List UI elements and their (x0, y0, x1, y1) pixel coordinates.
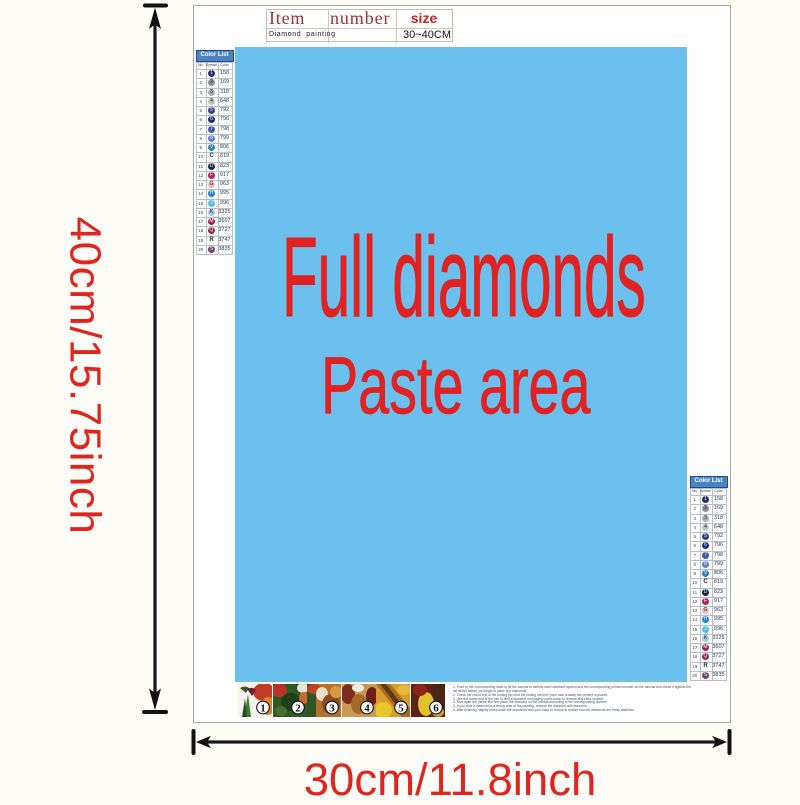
svg-text:2: 2 (295, 703, 301, 715)
svg-text:6: 6 (433, 703, 439, 715)
svg-text:1: 1 (260, 703, 266, 715)
svg-text:3: 3 (329, 703, 335, 715)
svg-text:5: 5 (399, 703, 405, 715)
svg-text:4: 4 (364, 703, 370, 715)
